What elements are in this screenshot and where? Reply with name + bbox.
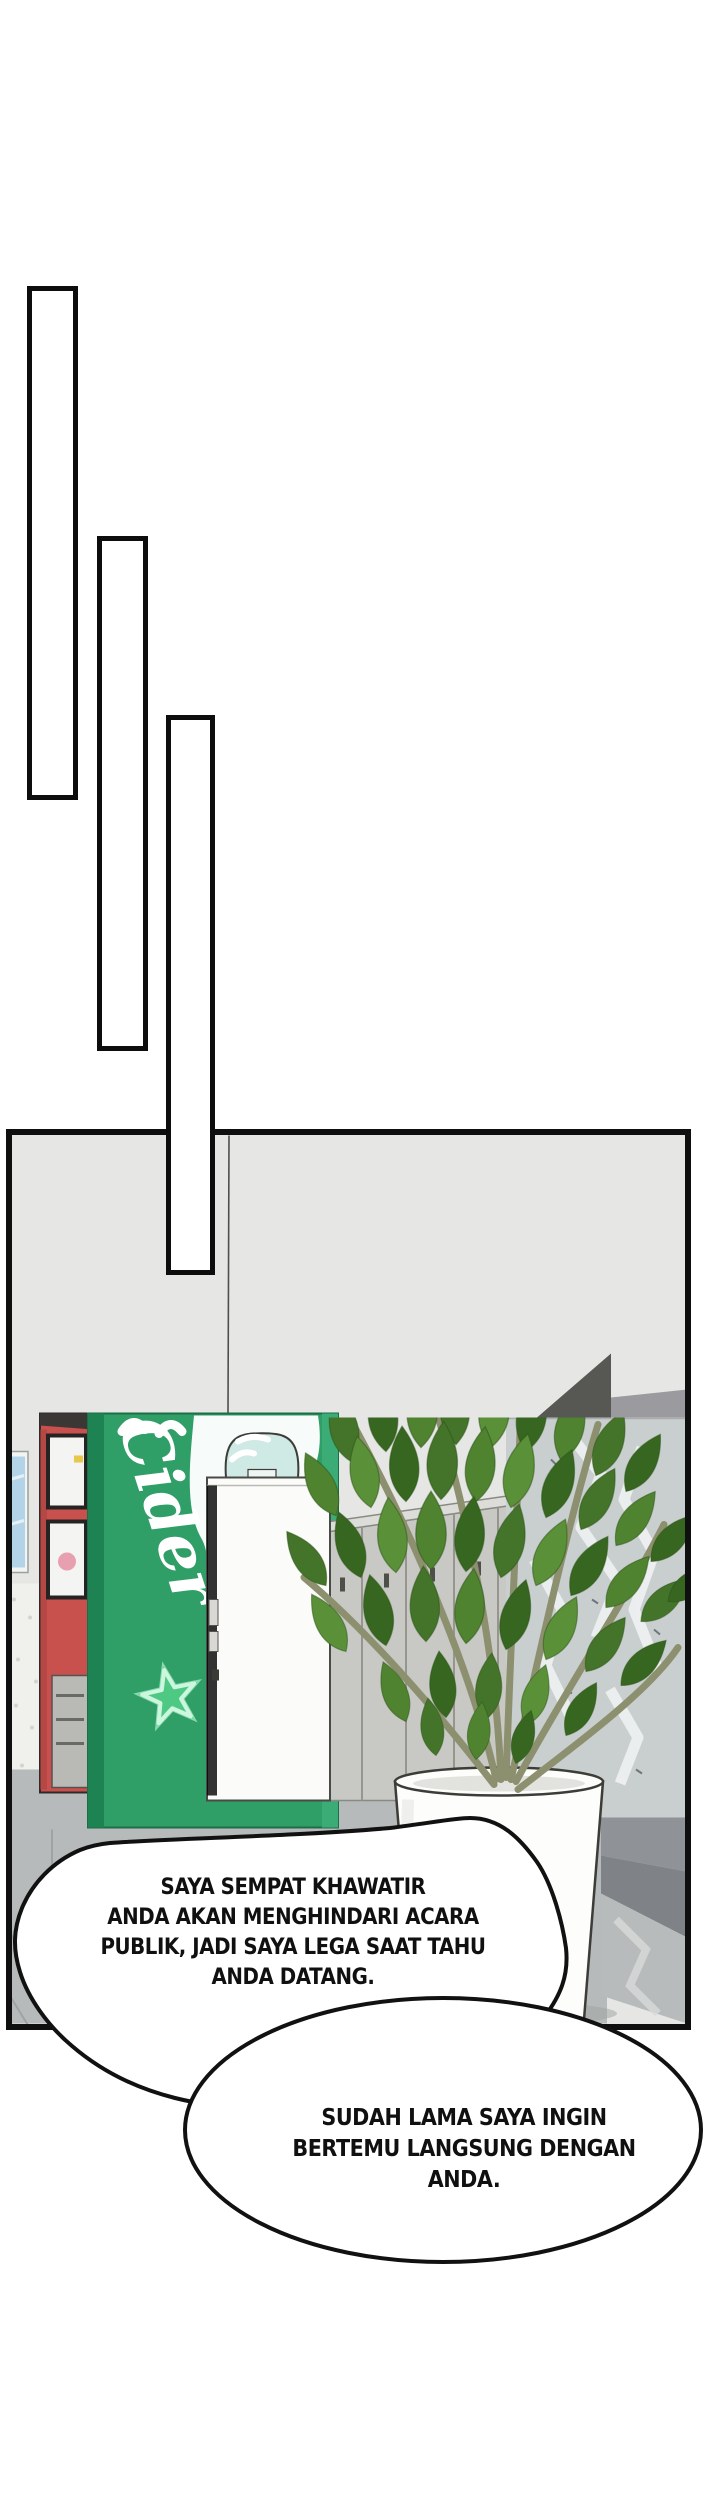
red-vending-machine (40, 1414, 93, 1793)
speech-bubbles (0, 1780, 720, 2300)
comic-page: Cider (0, 0, 720, 2500)
wall-poster (6, 1452, 28, 1573)
bubble1-line1: SAYA SEMPAT KHAWATIR (86, 1873, 500, 1903)
bubble2-line2: BERTEMU LANGSUNG DENGAN (284, 2134, 644, 2165)
speech-bubble-2-text: SUDAH LAMA SAYA INGIN BERTEMU LANGSUNG D… (284, 2103, 644, 2196)
speech-bubble-1-text: SAYA SEMPAT KHAWATIR ANDA AKAN MENGHINDA… (86, 1873, 500, 1993)
wall-seam-line (228, 1136, 229, 1416)
bubble1-line4: ANDA DATANG. (86, 1963, 500, 1993)
vertical-bar-1 (27, 286, 78, 800)
bubble2-line1: SUDAH LAMA SAYA INGIN (284, 2103, 644, 2134)
vertical-bar-2 (97, 536, 148, 1051)
bubble1-line3: PUBLIK, JADI SAYA LEGA SAAT TAHU (86, 1933, 500, 1963)
bubble2-line3: ANDA. (284, 2165, 644, 2196)
bubble1-line2: ANDA AKAN MENGHINDARI ACARA (86, 1903, 500, 1933)
vertical-bar-3 (166, 715, 215, 1275)
